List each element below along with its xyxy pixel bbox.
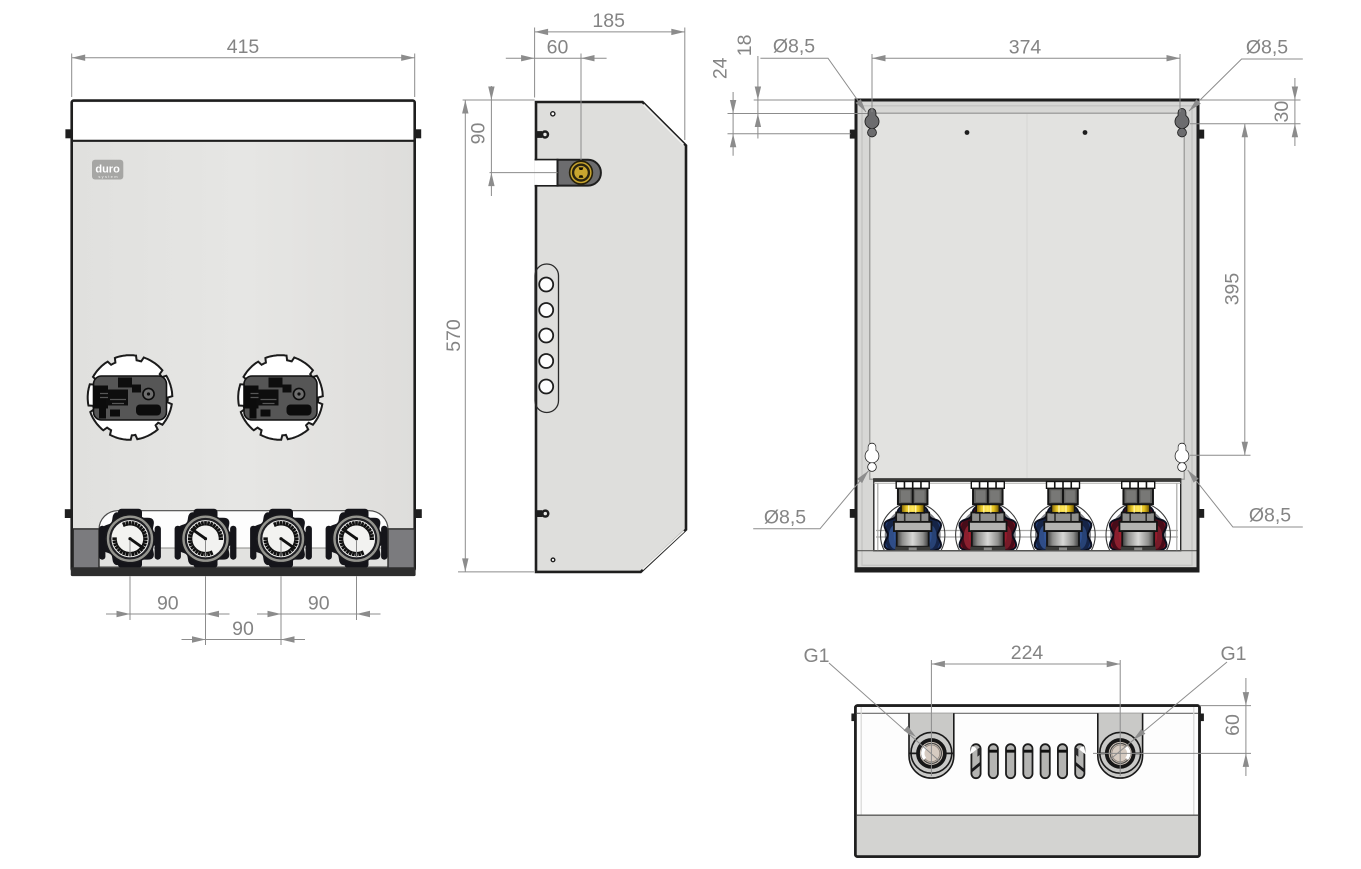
svg-text:90: 90 (308, 593, 330, 615)
svg-text:185: 185 (592, 10, 625, 32)
svg-text:395: 395 (1221, 273, 1243, 306)
svg-text:Ø8,5: Ø8,5 (764, 506, 806, 528)
svg-text:90: 90 (157, 593, 179, 615)
svg-text:60: 60 (1222, 714, 1244, 736)
svg-text:G1: G1 (1220, 643, 1246, 665)
svg-text:30: 30 (1271, 101, 1293, 123)
svg-text:570: 570 (443, 319, 465, 352)
svg-text:Ø8,5: Ø8,5 (773, 36, 815, 58)
svg-text:415: 415 (227, 36, 260, 58)
svg-text:G1: G1 (803, 645, 829, 667)
svg-text:Ø8,5: Ø8,5 (1249, 504, 1291, 526)
svg-text:224: 224 (1011, 642, 1044, 664)
svg-text:90: 90 (232, 618, 254, 640)
svg-text:60: 60 (547, 36, 569, 58)
svg-text:24: 24 (709, 57, 731, 79)
svg-text:system: system (98, 174, 118, 179)
svg-text:18: 18 (734, 35, 756, 57)
svg-text:374: 374 (1009, 36, 1042, 58)
svg-text:90: 90 (468, 123, 490, 145)
svg-text:Ø8,5: Ø8,5 (1246, 37, 1288, 59)
